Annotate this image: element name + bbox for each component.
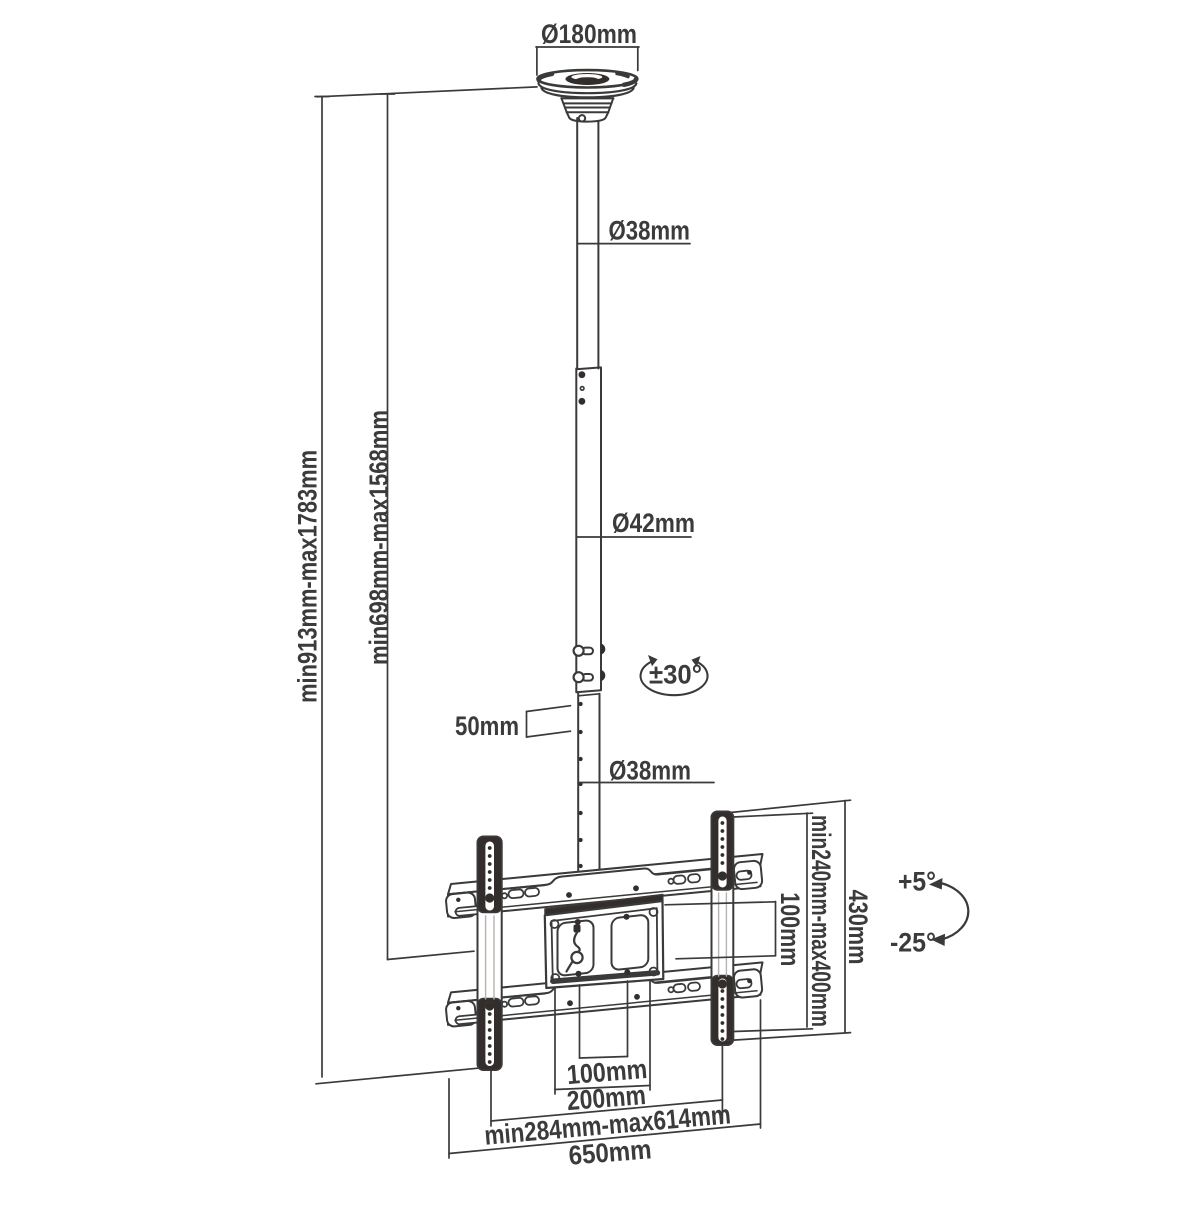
svg-text:-25°: -25° (890, 928, 936, 958)
svg-text:min913mm-max1783mm: min913mm-max1783mm (293, 450, 323, 703)
svg-text:+5°: +5° (898, 867, 936, 897)
svg-text:430mm: 430mm (843, 890, 873, 965)
svg-text:Ø180mm: Ø180mm (541, 19, 637, 49)
svg-text:100mm: 100mm (775, 892, 805, 966)
svg-text:min240mm-max400mm: min240mm-max400mm (806, 815, 836, 1027)
svg-text:Ø38mm: Ø38mm (609, 756, 691, 786)
svg-text:min698mm-max1568mm: min698mm-max1568mm (364, 410, 394, 665)
svg-text:±30°: ±30° (649, 660, 702, 690)
svg-text:Ø42mm: Ø42mm (612, 508, 695, 538)
svg-text:50mm: 50mm (455, 711, 519, 741)
svg-text:Ø38mm: Ø38mm (608, 216, 690, 246)
